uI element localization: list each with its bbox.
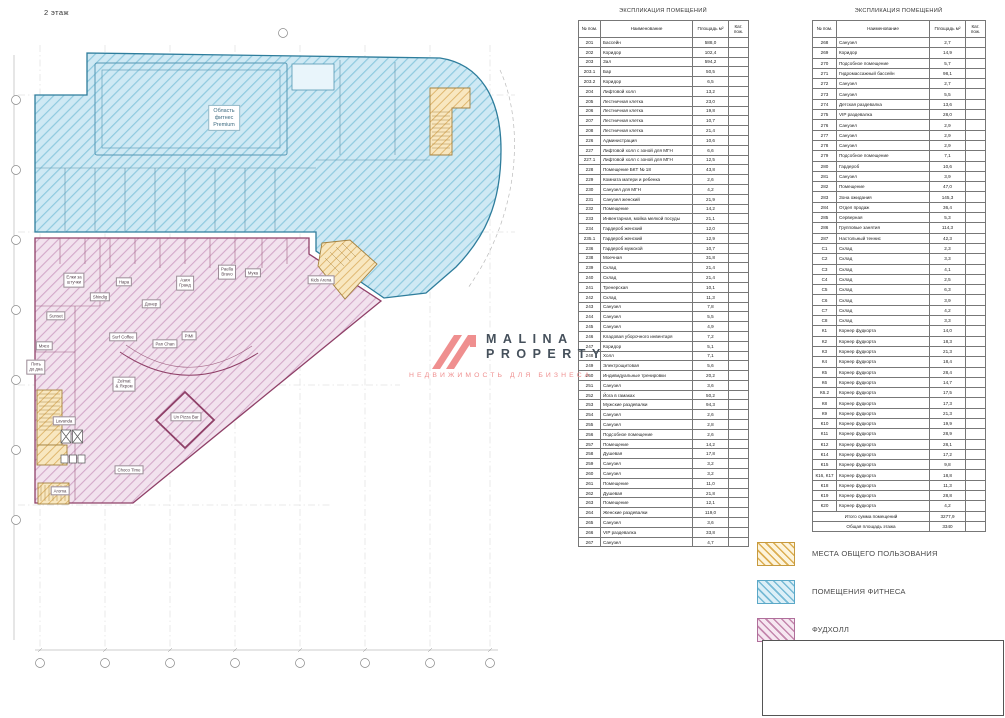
room-row: 277Санузел2,9 [813, 130, 986, 140]
num-cell: 207 [579, 116, 601, 126]
cat-cell [729, 312, 749, 322]
room-row: 256Подсобное помещение2,6 [579, 429, 749, 439]
area-cell: 7,2 [693, 331, 729, 341]
area-cell: 20,2 [693, 371, 729, 381]
cat-cell [729, 224, 749, 234]
cat-cell [729, 478, 749, 488]
num-cell: 241 [579, 282, 601, 292]
area-cell: 10,1 [693, 282, 729, 292]
room-row: 283Зона ожидания145,3 [813, 192, 986, 202]
num-cell: 228 [579, 165, 601, 175]
room-row: 232Помещение14,2 [579, 204, 749, 214]
area-cell: 4,9 [693, 322, 729, 332]
num-cell: 280 [813, 161, 837, 171]
area-cell: 13,6 [930, 99, 966, 109]
cat-cell [729, 155, 749, 165]
name-cell: Подсобное помещение [601, 429, 693, 439]
name-cell: Корнер фудкорта [837, 388, 930, 398]
room-table: № пом.НаименованиеПлощадь м²Кат. пож.201… [578, 20, 749, 547]
num-cell: К1 [813, 326, 837, 336]
area-cell: 28,1 [930, 439, 966, 449]
column-header: № пом. [579, 21, 601, 38]
room-row: 259Санузел3,2 [579, 459, 749, 469]
area-cell: 10,6 [930, 161, 966, 171]
total-label-cell: Итого сумма помещений [813, 511, 930, 521]
column-header: Площадь м² [693, 21, 729, 38]
cat-cell [966, 202, 986, 212]
name-cell: Корнер фудкорта [837, 418, 930, 428]
malina-logo-icon [430, 329, 482, 371]
room-row: 244Санузел5,5 [579, 312, 749, 322]
name-cell: Корнер фудкорта [837, 408, 930, 418]
cat-cell [729, 498, 749, 508]
cat-cell [729, 77, 749, 87]
cat-cell [966, 336, 986, 346]
num-cell: К9 [813, 408, 837, 418]
area-cell: 5,7 [930, 58, 966, 68]
room-row: 258Душевая17,8 [579, 449, 749, 459]
area-cell: 36,4 [930, 202, 966, 212]
plan-room-label: Мука [245, 268, 261, 277]
cat-cell [966, 511, 986, 521]
area-cell: 9,8 [930, 460, 966, 470]
num-cell: 264 [579, 508, 601, 518]
area-cell: 3,3 [930, 316, 966, 326]
num-cell: 286 [813, 223, 837, 233]
name-cell: Склад [601, 273, 693, 283]
area-cell: 31,8 [693, 253, 729, 263]
room-row: 257Помещение14,2 [579, 439, 749, 449]
cat-cell [966, 439, 986, 449]
name-cell: Санузел [837, 38, 930, 48]
num-cell: 226 [579, 135, 601, 145]
plan-room-label: Shindig [90, 292, 110, 301]
cat-cell [729, 263, 749, 273]
room-row: 280Гардероб10,6 [813, 161, 986, 171]
name-cell: Гардероб женский [601, 224, 693, 234]
name-cell: Лестничная клетка [601, 116, 693, 126]
cat-cell [729, 341, 749, 351]
num-cell: С3 [813, 264, 837, 274]
room-row: 281Санузел3,9 [813, 171, 986, 181]
num-cell: К16, К17 [813, 470, 837, 480]
area-cell: 5,5 [693, 312, 729, 322]
cat-cell [966, 357, 986, 367]
cat-cell [966, 295, 986, 305]
name-cell: Групповые занятия [837, 223, 930, 233]
room-row: 268Санузел2,7 [813, 38, 986, 48]
area-cell: 18,3 [930, 336, 966, 346]
cat-cell [729, 459, 749, 469]
room-row: 242Склад11,3 [579, 292, 749, 302]
area-cell: 19,8 [693, 106, 729, 116]
cat-cell [729, 439, 749, 449]
cat-cell [966, 305, 986, 315]
num-cell: К12 [813, 439, 837, 449]
column-header: Площадь м² [930, 21, 966, 38]
num-cell: С8 [813, 316, 837, 326]
name-cell: Санузел [837, 120, 930, 130]
cat-cell [966, 130, 986, 140]
cat-cell [729, 488, 749, 498]
cat-cell [729, 184, 749, 194]
num-cell: С1 [813, 243, 837, 253]
cat-cell [966, 171, 986, 181]
plan-room-label: Paella Bravo [218, 265, 236, 280]
area-cell: 18,4 [930, 357, 966, 367]
name-cell: Электрощитовая [601, 361, 693, 371]
title-block-frame [762, 640, 1004, 716]
num-cell: 233 [579, 214, 601, 224]
room-row: 202Коридор102,4 [579, 47, 749, 57]
name-cell: Корнер фудкорта [837, 336, 930, 346]
room-row: 267Санузел4,7 [579, 537, 749, 547]
name-cell: Детская раздевалка [837, 99, 930, 109]
cat-cell [729, 429, 749, 439]
num-cell: К5 [813, 367, 837, 377]
area-cell: 3,2 [693, 469, 729, 479]
room-row: К10Корнер фудкорта19,9 [813, 418, 986, 428]
area-cell: 5,5 [930, 89, 966, 99]
cat-cell [729, 508, 749, 518]
room-row: К6.2Корнер фудкорта17,5 [813, 388, 986, 398]
area-cell: 7,1 [693, 351, 729, 361]
area-cell: 14,2 [693, 439, 729, 449]
num-cell: К6 [813, 377, 837, 387]
num-cell: К4 [813, 357, 837, 367]
num-cell: 287 [813, 233, 837, 243]
num-cell: 242 [579, 292, 601, 302]
area-cell: 10,6 [693, 135, 729, 145]
name-cell: Склад [601, 263, 693, 273]
num-cell: 203.1 [579, 67, 601, 77]
num-cell: 252 [579, 390, 601, 400]
cat-cell [729, 380, 749, 390]
num-cell: 267 [579, 537, 601, 547]
num-cell: 202 [579, 47, 601, 57]
num-cell: 263 [579, 498, 601, 508]
num-cell: 261 [579, 478, 601, 488]
cat-cell [966, 346, 986, 356]
name-cell: Помещение [837, 182, 930, 192]
room-row: 260Санузел3,2 [579, 469, 749, 479]
room-row: 285Серверная5,3 [813, 213, 986, 223]
num-cell: 232 [579, 204, 601, 214]
area-cell: 2,7 [930, 38, 966, 48]
cat-cell [729, 57, 749, 67]
area-cell: 17,3 [930, 398, 966, 408]
area-cell: 18,8 [930, 470, 966, 480]
name-cell: Холл [601, 351, 693, 361]
area-cell: 2,9 [930, 120, 966, 130]
cat-cell [966, 470, 986, 480]
name-cell: Санузел [601, 302, 693, 312]
num-cell: 227.1 [579, 155, 601, 165]
num-cell: С5 [813, 285, 837, 295]
num-cell: К11 [813, 429, 837, 439]
area-cell: 2,7 [930, 79, 966, 89]
num-cell: К10 [813, 418, 837, 428]
column-header: Кат. пож. [729, 21, 749, 38]
name-cell: Лестничная клетка [601, 96, 693, 106]
plan-room-label: Aroma [51, 486, 70, 495]
room-row: С2Склад3,3 [813, 254, 986, 264]
area-cell: 12,1 [693, 498, 729, 508]
cat-cell [729, 165, 749, 175]
cat-cell [729, 145, 749, 155]
cat-cell [966, 233, 986, 243]
name-cell: Индивидуальные тренировки [601, 371, 693, 381]
legend-label: МЕСТА ОБЩЕГО ПОЛЬЗОВАНИЯ [812, 549, 938, 558]
name-cell: Корнер фудкорта [837, 470, 930, 480]
cat-cell [729, 273, 749, 283]
num-cell: 244 [579, 312, 601, 322]
num-cell: К6.2 [813, 388, 837, 398]
name-cell: Склад [837, 264, 930, 274]
area-cell: 11,3 [693, 292, 729, 302]
plan-room-label: Kids Arena [308, 275, 335, 284]
name-cell: VIP раздевалка [837, 110, 930, 120]
num-cell: 258 [579, 449, 601, 459]
room-row: 263Помещение12,1 [579, 498, 749, 508]
room-row: 274Детская раздевалка13,6 [813, 99, 986, 109]
cat-cell [966, 213, 986, 223]
area-cell: 5,6 [693, 361, 729, 371]
cat-cell [729, 292, 749, 302]
num-cell: 239 [579, 263, 601, 273]
area-cell: 6,3 [930, 285, 966, 295]
room-row: К15Корнер фудкорта9,8 [813, 460, 986, 470]
cat-cell [729, 449, 749, 459]
room-row: 235.1Гардероб женский12,9 [579, 233, 749, 243]
room-row: 205Лестничная клетка23,0 [579, 96, 749, 106]
total-row: Общая площадь этажа3340 [813, 521, 986, 531]
legend-label: ФУДХОЛЛ [812, 625, 849, 634]
num-cell: 243 [579, 302, 601, 312]
plan-room-label: Pan Chan [152, 339, 177, 348]
name-cell: Гардероб [837, 161, 930, 171]
num-cell: 203.2 [579, 77, 601, 87]
num-cell: 201 [579, 38, 601, 48]
cat-cell [729, 282, 749, 292]
num-cell: 270 [813, 58, 837, 68]
area-cell: 21,8 [693, 488, 729, 498]
plan-room-label: Елки за штучки [63, 273, 84, 288]
area-cell: 6,5 [693, 77, 729, 87]
room-row: 203.2Коридор6,5 [579, 77, 749, 87]
num-cell: К2 [813, 336, 837, 346]
cat-cell [966, 408, 986, 418]
area-cell: 588,0 [693, 38, 729, 48]
cat-cell [729, 194, 749, 204]
area-cell: 145,3 [930, 192, 966, 202]
num-cell: 273 [813, 89, 837, 99]
room-row: К19Корнер фудкорта28,8 [813, 491, 986, 501]
num-cell: 257 [579, 439, 601, 449]
area-cell: 11,3 [930, 480, 966, 490]
name-cell: Корнер фудкорта [837, 501, 930, 511]
area-cell: 17,8 [693, 449, 729, 459]
room-row: К9Корнер фудкорта21,3 [813, 408, 986, 418]
cat-cell [966, 491, 986, 501]
area-cell: 3,3 [930, 254, 966, 264]
legend-item: МЕСТА ОБЩЕГО ПОЛЬЗОВАНИЯ [757, 541, 938, 566]
name-cell: Помещение БКТ № 18 [601, 165, 693, 175]
area-cell: 28,0 [930, 110, 966, 120]
name-cell: Коридор [601, 47, 693, 57]
num-cell: 254 [579, 410, 601, 420]
room-row: 207Лестничная клетка10,7 [579, 116, 749, 126]
cat-cell [966, 521, 986, 531]
room-row: 254Санузел2,6 [579, 410, 749, 420]
name-cell: Склад [837, 295, 930, 305]
room-row: 230Санузел для МГН4,2 [579, 184, 749, 194]
plan-room-label: Донер [142, 299, 161, 308]
room-row: К2Корнер фудкорта18,3 [813, 336, 986, 346]
name-cell: Подсобное помещение [837, 58, 930, 68]
cat-cell [729, 175, 749, 185]
area-cell: 10,7 [693, 116, 729, 126]
cat-cell [966, 151, 986, 161]
cat-cell [966, 99, 986, 109]
room-row: 233Инвентарная, мойка мелкой посуды21,1 [579, 214, 749, 224]
legend-item: ПОМЕЩЕНИЯ ФИТНЕСА [757, 579, 938, 604]
area-cell: 19,9 [930, 418, 966, 428]
room-row: 203Зал594,2 [579, 57, 749, 67]
name-cell: Женские раздевалки [601, 508, 693, 518]
room-row: 236Гардероб мужской10,7 [579, 243, 749, 253]
cat-cell [729, 67, 749, 77]
area-cell: 3,9 [930, 295, 966, 305]
area-cell: 3,9 [930, 171, 966, 181]
name-cell: Корнер фудкорта [837, 460, 930, 470]
name-cell: Склад [837, 243, 930, 253]
name-cell: Санузел [837, 130, 930, 140]
name-cell: Душевая [601, 488, 693, 498]
total-row: Итого сумма помещений3277,9 [813, 511, 986, 521]
room-row: 226Администрация10,6 [579, 135, 749, 145]
room-row: К4Корнер фудкорта18,4 [813, 357, 986, 367]
area-cell: 10,7 [693, 243, 729, 253]
num-cell: 238 [579, 253, 601, 263]
legend-swatch [757, 580, 795, 604]
area-cell: 28,9 [930, 429, 966, 439]
area-cell: 14,7 [930, 377, 966, 387]
room-row: 229Комната матери и ребенка2,6 [579, 175, 749, 185]
cat-cell [729, 331, 749, 341]
cat-cell [729, 214, 749, 224]
plan-room-label: Нара [116, 277, 132, 286]
cat-cell [966, 264, 986, 274]
num-cell: 266 [579, 527, 601, 537]
name-cell: Корнер фудкорта [837, 429, 930, 439]
name-cell: Санузел [601, 410, 693, 420]
name-cell: Гардероб женский [601, 233, 693, 243]
name-cell: Помещение [601, 498, 693, 508]
area-cell: 4,1 [930, 264, 966, 274]
cat-cell [966, 429, 986, 439]
column-header: № пом. [813, 21, 837, 38]
cat-cell [729, 302, 749, 312]
room-row: 206Лестничная клетка19,8 [579, 106, 749, 116]
name-cell: Корнер фудкорта [837, 449, 930, 459]
room-row: 227Лифтовой холл с зоной для МГН6,6 [579, 145, 749, 155]
area-cell: 50,2 [693, 390, 729, 400]
room-row: С1Склад2,3 [813, 243, 986, 253]
column-header: Наименование [837, 21, 930, 38]
room-row: 241Тренерская10,1 [579, 282, 749, 292]
area-cell: 28,4 [930, 367, 966, 377]
area-cell: 50,5 [693, 67, 729, 77]
room-row: 272Санузел2,7 [813, 79, 986, 89]
num-cell: К3 [813, 346, 837, 356]
room-row: 284Отдел продаж36,4 [813, 202, 986, 212]
area-cell: 2,9 [930, 140, 966, 150]
table-title: ЭКСПЛИКАЦИЯ ПОМЕЩЕНИЙ [578, 8, 748, 14]
area-cell: 119,0 [693, 508, 729, 518]
room-row: 201Бассейн588,0 [579, 38, 749, 48]
num-cell: 204 [579, 86, 601, 96]
name-cell: Помещение [601, 439, 693, 449]
total-value-cell: 3340 [930, 521, 966, 531]
area-cell: 3,6 [693, 380, 729, 390]
total-value-cell: 3277,9 [930, 511, 966, 521]
name-cell: Помещение [601, 204, 693, 214]
name-cell: Санузел [601, 420, 693, 430]
area-cell: 594,2 [693, 57, 729, 67]
plan-room-label: Choco Time [115, 465, 144, 474]
name-cell: Корнер фудкорта [837, 480, 930, 490]
area-cell: 4,2 [693, 184, 729, 194]
cat-cell [729, 410, 749, 420]
cat-cell [729, 126, 749, 136]
name-cell: Санузел [601, 380, 693, 390]
num-cell: С6 [813, 295, 837, 305]
cat-cell [729, 371, 749, 381]
num-cell: 284 [813, 202, 837, 212]
num-cell: К20 [813, 501, 837, 511]
cat-cell [966, 418, 986, 428]
room-row: 265Санузел3,6 [579, 518, 749, 528]
area-cell: 23,0 [693, 96, 729, 106]
room-row: 238Моечная31,8 [579, 253, 749, 263]
area-cell: 21,4 [693, 273, 729, 283]
name-cell: Инвентарная, мойка мелкой посуды [601, 214, 693, 224]
room-row: С3Склад4,1 [813, 264, 986, 274]
room-row: 286Групповые занятия114,3 [813, 223, 986, 233]
cat-cell [966, 161, 986, 171]
name-cell: Моечная [601, 253, 693, 263]
cat-cell [966, 388, 986, 398]
num-cell: 285 [813, 213, 837, 223]
room-row: К18Корнер фудкорта11,3 [813, 480, 986, 490]
area-cell: 12,9 [693, 233, 729, 243]
plan-room-label: Sunset [46, 311, 65, 320]
room-row: 255Санузел2,8 [579, 420, 749, 430]
num-cell: 253 [579, 400, 601, 410]
name-cell: Корнер фудкорта [837, 439, 930, 449]
name-cell: Коридор [837, 48, 930, 58]
name-cell: Гардероб мужской [601, 243, 693, 253]
area-cell: 114,3 [930, 223, 966, 233]
cat-cell [966, 501, 986, 511]
area-cell: 21,4 [693, 126, 729, 136]
num-cell: 269 [813, 48, 837, 58]
area-cell: 21,4 [693, 263, 729, 273]
name-cell: Корнер фудкорта [837, 346, 930, 356]
cat-cell [729, 106, 749, 116]
num-cell: К14 [813, 449, 837, 459]
